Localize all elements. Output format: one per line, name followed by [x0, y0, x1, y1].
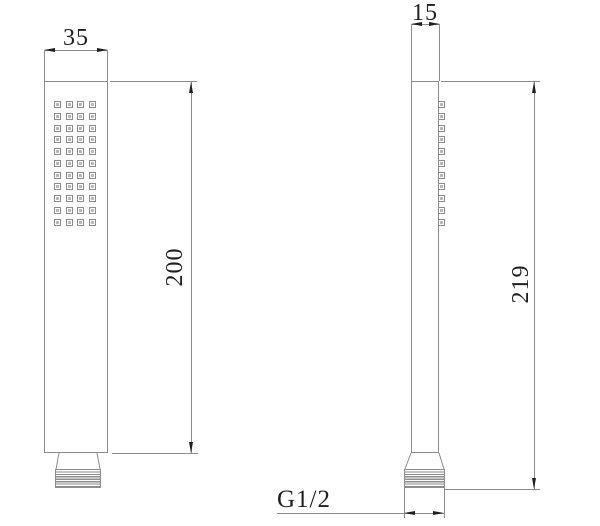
nozzle-hole-inner [79, 209, 82, 212]
nozzle-hole-inner [91, 221, 94, 224]
side-width-extension-left [411, 24, 412, 81]
nozzle-hole [66, 172, 73, 179]
nozzle-hole-inner [56, 127, 59, 130]
nozzle-hole [438, 136, 445, 143]
nozzle-hole-inner [91, 127, 94, 130]
side-height-dimension-line [534, 81, 535, 489]
nozzle-hole-inner [79, 197, 82, 200]
nozzle-hole-inner [79, 174, 82, 177]
side-height-dimension-label: 219 [508, 254, 534, 314]
nozzle-hole [77, 219, 84, 226]
nozzle-hole [66, 195, 73, 202]
nozzle-hole [438, 113, 445, 120]
nozzle-hole [66, 160, 73, 167]
nozzle-hole-inner [440, 209, 443, 212]
front-height-dimension-line [191, 81, 192, 453]
nozzle-hole [89, 136, 96, 143]
nozzle-hole-inner [79, 221, 82, 224]
nozzle-hole [77, 207, 84, 214]
front-height-extension-bottom [112, 453, 198, 454]
nozzle-hole [77, 160, 84, 167]
nozzle-hole [54, 125, 61, 132]
nozzle-hole [89, 219, 96, 226]
nozzle-hole-inner [56, 115, 59, 118]
nozzle-hole [54, 183, 61, 190]
front-neck [50, 452, 104, 470]
nozzle-hole [66, 183, 73, 190]
thread-dimension-label: G1/2 [277, 488, 331, 512]
nozzle-hole [89, 172, 96, 179]
side-thread-connector [404, 469, 445, 488]
side-width-arrow-left [411, 22, 422, 26]
nozzle-hole-inner [79, 127, 82, 130]
nozzle-hole [77, 172, 84, 179]
thread-extension-right [444, 488, 445, 518]
nozzle-hole [77, 136, 84, 143]
front-height-arrow-top [189, 82, 193, 93]
side-width-extension-right [439, 24, 440, 81]
nozzle-hole [89, 148, 96, 155]
nozzle-hole [438, 183, 445, 190]
nozzle-hole-inner [79, 115, 82, 118]
nozzle-hole [438, 148, 445, 155]
nozzle-hole [66, 148, 73, 155]
nozzle-hole-inner [91, 138, 94, 141]
nozzle-hole-inner [68, 150, 71, 153]
nozzle-hole-inner [56, 197, 59, 200]
nozzle-hole-inner [91, 162, 94, 165]
side-height-extension-top [441, 81, 540, 82]
nozzle-hole-inner [68, 103, 71, 106]
front-width-dimension-label: 35 [49, 26, 103, 50]
front-width-extension-left [44, 50, 45, 81]
nozzle-hole [66, 136, 73, 143]
nozzle-hole [438, 207, 445, 214]
nozzle-hole-inner [79, 138, 82, 141]
nozzle-hole [54, 136, 61, 143]
side-nozzle-row [438, 101, 446, 230]
nozzle-hole-inner [68, 174, 71, 177]
nozzle-hole [66, 207, 73, 214]
nozzle-hole-inner [440, 127, 443, 130]
nozzle-hole-inner [440, 103, 443, 106]
technical-drawing-canvas: 35 200 15 219 G1/2 [0, 0, 600, 526]
nozzle-hole [89, 160, 96, 167]
nozzle-hole [54, 160, 61, 167]
nozzle-hole-inner [440, 174, 443, 177]
nozzle-hole-inner [56, 150, 59, 153]
nozzle-hole [54, 219, 61, 226]
nozzle-hole-inner [56, 138, 59, 141]
thread-dimension-line [277, 513, 444, 514]
side-height-extension-bottom [445, 489, 540, 490]
nozzle-hole-inner [68, 221, 71, 224]
nozzle-hole [89, 125, 96, 132]
nozzle-hole-inner [56, 221, 59, 224]
nozzle-hole [66, 113, 73, 120]
nozzle-hole [54, 101, 61, 108]
nozzle-hole [77, 125, 84, 132]
nozzle-hole-inner [91, 209, 94, 212]
nozzle-hole-inner [440, 162, 443, 165]
front-height-arrow-bottom [189, 442, 193, 453]
nozzle-hole-inner [56, 209, 59, 212]
nozzle-hole [54, 148, 61, 155]
nozzle-hole [438, 160, 445, 167]
nozzle-hole-inner [68, 185, 71, 188]
nozzle-hole [89, 207, 96, 214]
thread-arrow-left [404, 511, 415, 515]
nozzle-hole [66, 125, 73, 132]
nozzle-hole-inner [68, 115, 71, 118]
nozzle-hole-inner [79, 185, 82, 188]
nozzle-hole-inner [440, 115, 443, 118]
side-view-body [411, 81, 439, 453]
nozzle-hole [89, 195, 96, 202]
nozzle-hole-inner [68, 209, 71, 212]
nozzle-hole-inner [79, 103, 82, 106]
nozzle-hole-inner [91, 185, 94, 188]
nozzle-hole [54, 207, 61, 214]
nozzle-hole-inner [68, 127, 71, 130]
side-neck [398, 452, 450, 470]
side-height-arrow-top [532, 82, 536, 93]
nozzle-hole [89, 183, 96, 190]
nozzle-hole-inner [91, 197, 94, 200]
nozzle-hole [54, 113, 61, 120]
nozzle-hole [438, 195, 445, 202]
nozzle-hole-inner [56, 185, 59, 188]
nozzle-hole [438, 172, 445, 179]
nozzle-hole-inner [440, 221, 443, 224]
front-height-dimension-label: 200 [162, 237, 188, 297]
nozzle-hole [89, 101, 96, 108]
nozzle-hole-inner [91, 103, 94, 106]
nozzle-hole-inner [56, 103, 59, 106]
nozzle-hole [77, 148, 84, 155]
nozzle-hole [77, 113, 84, 120]
nozzle-hole-inner [56, 162, 59, 165]
nozzle-hole-inner [68, 138, 71, 141]
nozzle-hole [438, 125, 445, 132]
nozzle-hole-inner [68, 197, 71, 200]
front-thread-connector [55, 469, 101, 488]
nozzle-hole [77, 195, 84, 202]
nozzle-hole-inner [91, 174, 94, 177]
nozzle-hole-inner [440, 185, 443, 188]
nozzle-hole [438, 219, 445, 226]
side-height-arrow-bottom [532, 478, 536, 489]
nozzle-hole-inner [79, 162, 82, 165]
thread-arrow-right [433, 511, 444, 515]
side-width-dimension-label: 15 [398, 1, 452, 25]
nozzle-hole [54, 195, 61, 202]
nozzle-hole [438, 101, 445, 108]
nozzle-hole [54, 172, 61, 179]
nozzle-hole [77, 183, 84, 190]
nozzle-hole-inner [91, 150, 94, 153]
nozzle-hole-inner [440, 138, 443, 141]
front-width-arrow-left [44, 48, 55, 52]
nozzle-hole [66, 101, 73, 108]
nozzle-hole-inner [440, 150, 443, 153]
front-nozzle-grid [54, 101, 100, 230]
nozzle-hole [66, 219, 73, 226]
front-height-extension-top [110, 81, 197, 82]
nozzle-hole-inner [91, 115, 94, 118]
nozzle-hole-inner [68, 162, 71, 165]
front-width-extension-right [107, 50, 108, 81]
nozzle-hole [89, 113, 96, 120]
nozzle-hole-inner [56, 174, 59, 177]
nozzle-hole-inner [440, 197, 443, 200]
nozzle-hole [77, 101, 84, 108]
nozzle-hole-inner [79, 150, 82, 153]
